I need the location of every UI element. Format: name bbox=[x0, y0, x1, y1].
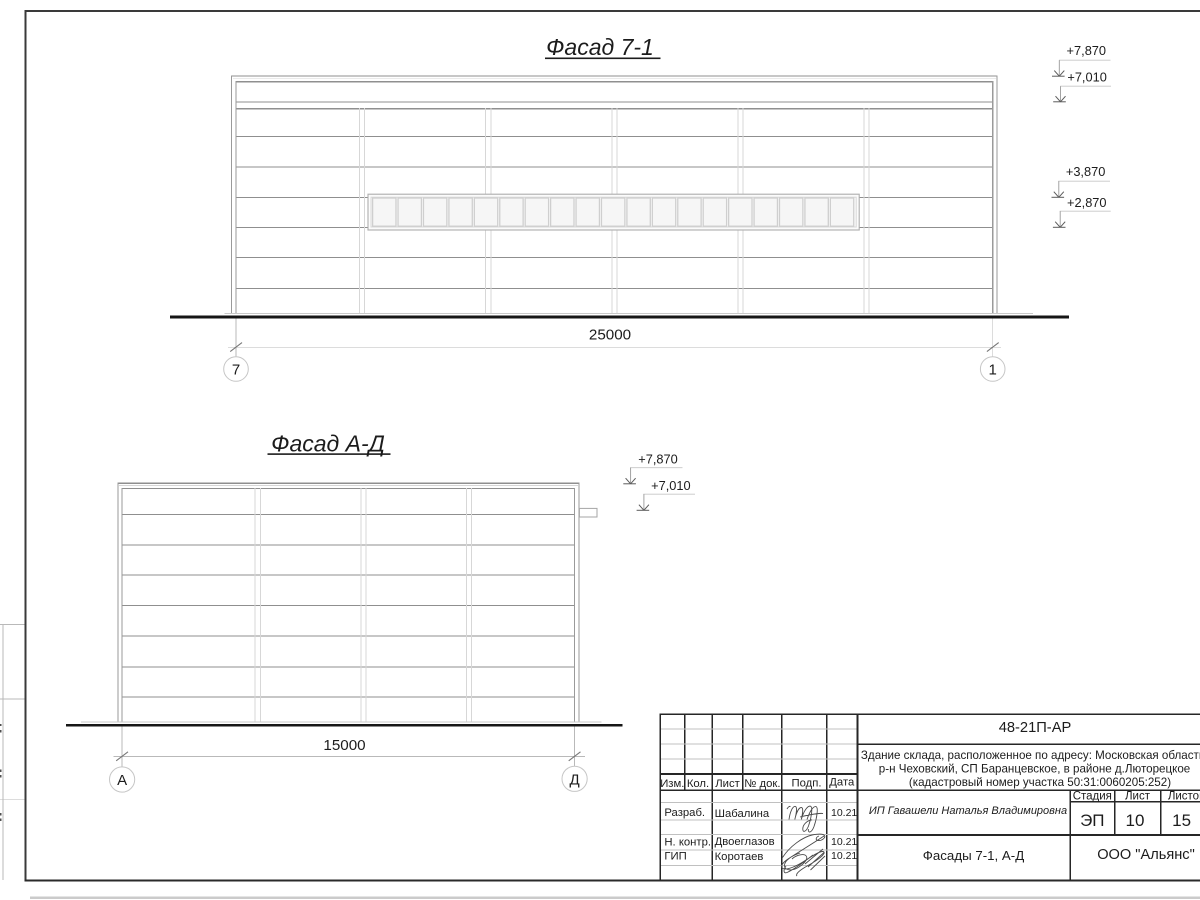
svg-text:+3,870: +3,870 bbox=[1066, 164, 1106, 179]
svg-text:А: А bbox=[117, 772, 127, 789]
svg-text:Листов: Листов bbox=[1168, 791, 1200, 803]
svg-text:Изм.: Изм. bbox=[660, 778, 684, 790]
svg-text:15000: 15000 bbox=[323, 737, 365, 754]
svg-text:Лист: Лист bbox=[1125, 791, 1151, 803]
svg-text:Шабалина: Шабалина bbox=[715, 808, 770, 820]
svg-text:ИП Гавашели Наталья Владимиров: ИП Гавашели Наталья Владимировна bbox=[869, 805, 1067, 817]
svg-text:Стадия: Стадия bbox=[1073, 791, 1112, 803]
svg-text:Дата: Дата bbox=[829, 777, 855, 789]
svg-text:10: 10 bbox=[1126, 811, 1145, 830]
svg-text:Разраб.: Разраб. bbox=[664, 807, 705, 819]
svg-text:Н. контр.: Н. контр. bbox=[664, 837, 711, 849]
svg-text:(кадастровый номер участка 50:: (кадастровый номер участка 50:31:0060205… bbox=[909, 776, 1171, 789]
svg-text:ЭП: ЭП bbox=[1080, 811, 1104, 830]
svg-text:ООО "Альянс": ООО "Альянс" bbox=[1097, 847, 1195, 863]
svg-text:15: 15 bbox=[1172, 811, 1191, 830]
svg-text:+2,870: +2,870 bbox=[1067, 195, 1107, 210]
svg-text:р-н Чеховский, СП Баранцевское: р-н Чеховский, СП Баранцевское, в районе… bbox=[879, 763, 1190, 776]
svg-text:10.21: 10.21 bbox=[831, 836, 857, 848]
svg-text:Фасад 7-1: Фасад 7-1 bbox=[546, 34, 654, 60]
svg-text:48-21П-АР: 48-21П-АР bbox=[999, 720, 1072, 736]
svg-text:Здание склада, расположенное п: Здание склада, расположенное по адресу: … bbox=[861, 749, 1200, 762]
svg-text:Подп.: Подп. bbox=[791, 777, 821, 789]
svg-text:Д: Д bbox=[570, 771, 580, 788]
svg-text:ГИП: ГИП bbox=[664, 850, 686, 862]
svg-text:Фасады 7-1, А-Д: Фасады 7-1, А-Д bbox=[923, 848, 1024, 863]
svg-text:1: 1 bbox=[989, 361, 997, 378]
svg-text:Фасад А-Д: Фасад А-Д bbox=[271, 431, 385, 457]
svg-text:+7,870: +7,870 bbox=[1067, 43, 1107, 58]
svg-text:10.21: 10.21 bbox=[831, 807, 857, 819]
svg-text:+7,010: +7,010 bbox=[1067, 70, 1107, 85]
svg-text:10.21: 10.21 bbox=[831, 850, 857, 862]
svg-text:Коротаев: Коротаев bbox=[715, 851, 764, 863]
svg-text:Кол.: Кол. bbox=[687, 778, 709, 790]
svg-text:+7,010: +7,010 bbox=[651, 478, 691, 493]
svg-text:+7,870: +7,870 bbox=[638, 451, 678, 466]
svg-text:Лист: Лист bbox=[715, 778, 740, 790]
svg-text:7: 7 bbox=[232, 361, 240, 378]
svg-text:25000: 25000 bbox=[589, 327, 631, 344]
svg-text:№ док.: № док. bbox=[744, 778, 780, 790]
svg-text:Двоеглазов: Двоеглазов bbox=[715, 836, 775, 848]
